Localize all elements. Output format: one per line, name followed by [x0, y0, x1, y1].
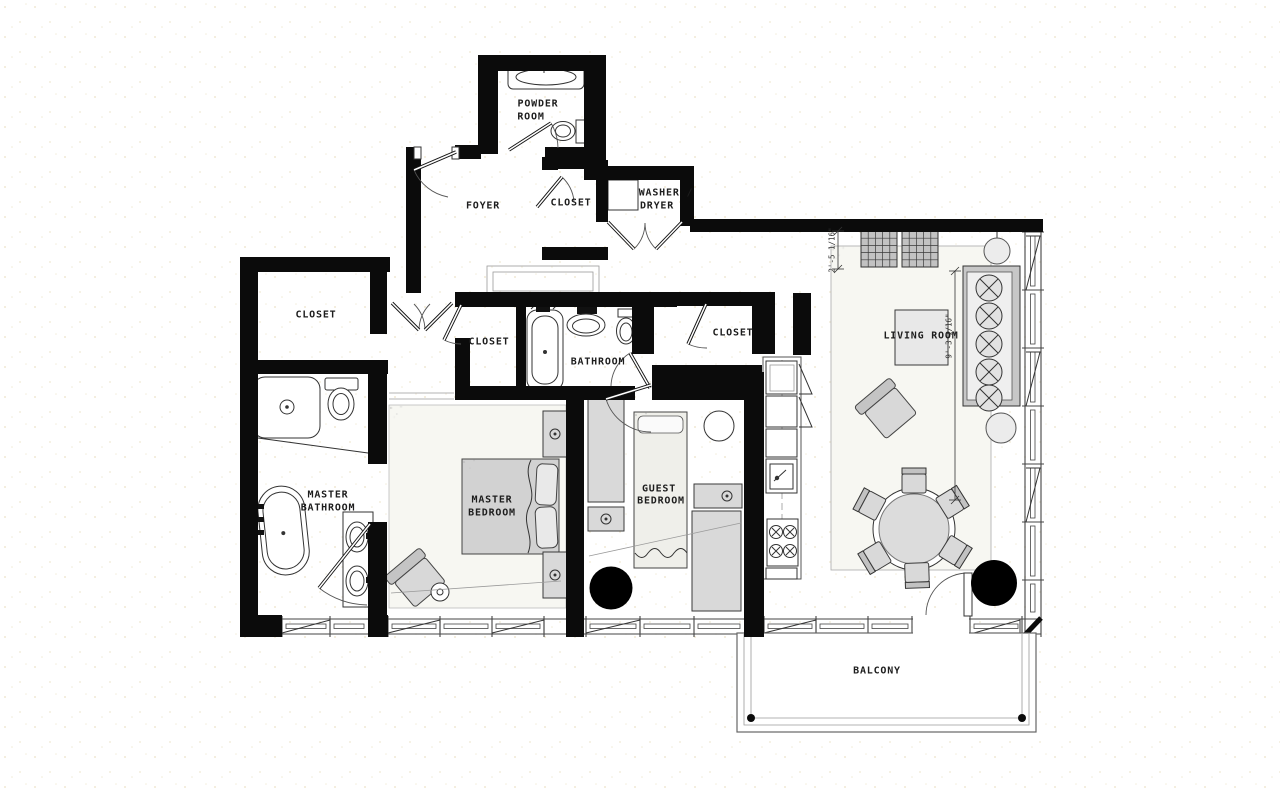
- label-closet-master: CLOSET: [296, 310, 337, 321]
- label-powder-room-line1: POWDER: [518, 99, 559, 110]
- label-guest-bedroom-line2: BEDROOM: [637, 496, 685, 507]
- label-master-bathroom-line1: MASTER: [308, 490, 349, 501]
- label-closet-guest: CLOSET: [713, 328, 754, 339]
- floor-plan: POWDER ROOM FOYER CLOSET WASHER / DRYER …: [0, 0, 1280, 800]
- label-bathroom: BATHROOM: [571, 357, 626, 368]
- balcony-railing: [737, 633, 1036, 732]
- label-closet-hall: CLOSET: [469, 337, 510, 348]
- label-master-bathroom-line2: BATHROOM: [301, 503, 356, 514]
- label-closet-foyer: CLOSET: [551, 198, 592, 209]
- label-washer-dryer-line2: DRYER: [640, 201, 674, 212]
- washer-dryer-unit: [608, 180, 638, 210]
- label-master-bedroom-line2: BEDROOM: [468, 508, 516, 519]
- label-guest-bedroom-line1: GUEST: [642, 484, 676, 495]
- label-foyer: FOYER: [466, 201, 500, 212]
- dimension-living-width: 2'-5 1/16": [828, 227, 837, 272]
- dimension-living-length: 9'-3 1/16": [945, 313, 954, 358]
- label-washer-dryer-line1: WASHER /: [639, 188, 694, 199]
- label-master-bedroom-line1: MASTER: [472, 495, 513, 506]
- floor-plan-drawing: [0, 0, 1280, 800]
- label-powder-room-line2: ROOM: [517, 112, 544, 123]
- label-balcony: BALCONY: [853, 666, 901, 677]
- paper-background: [0, 0, 1280, 800]
